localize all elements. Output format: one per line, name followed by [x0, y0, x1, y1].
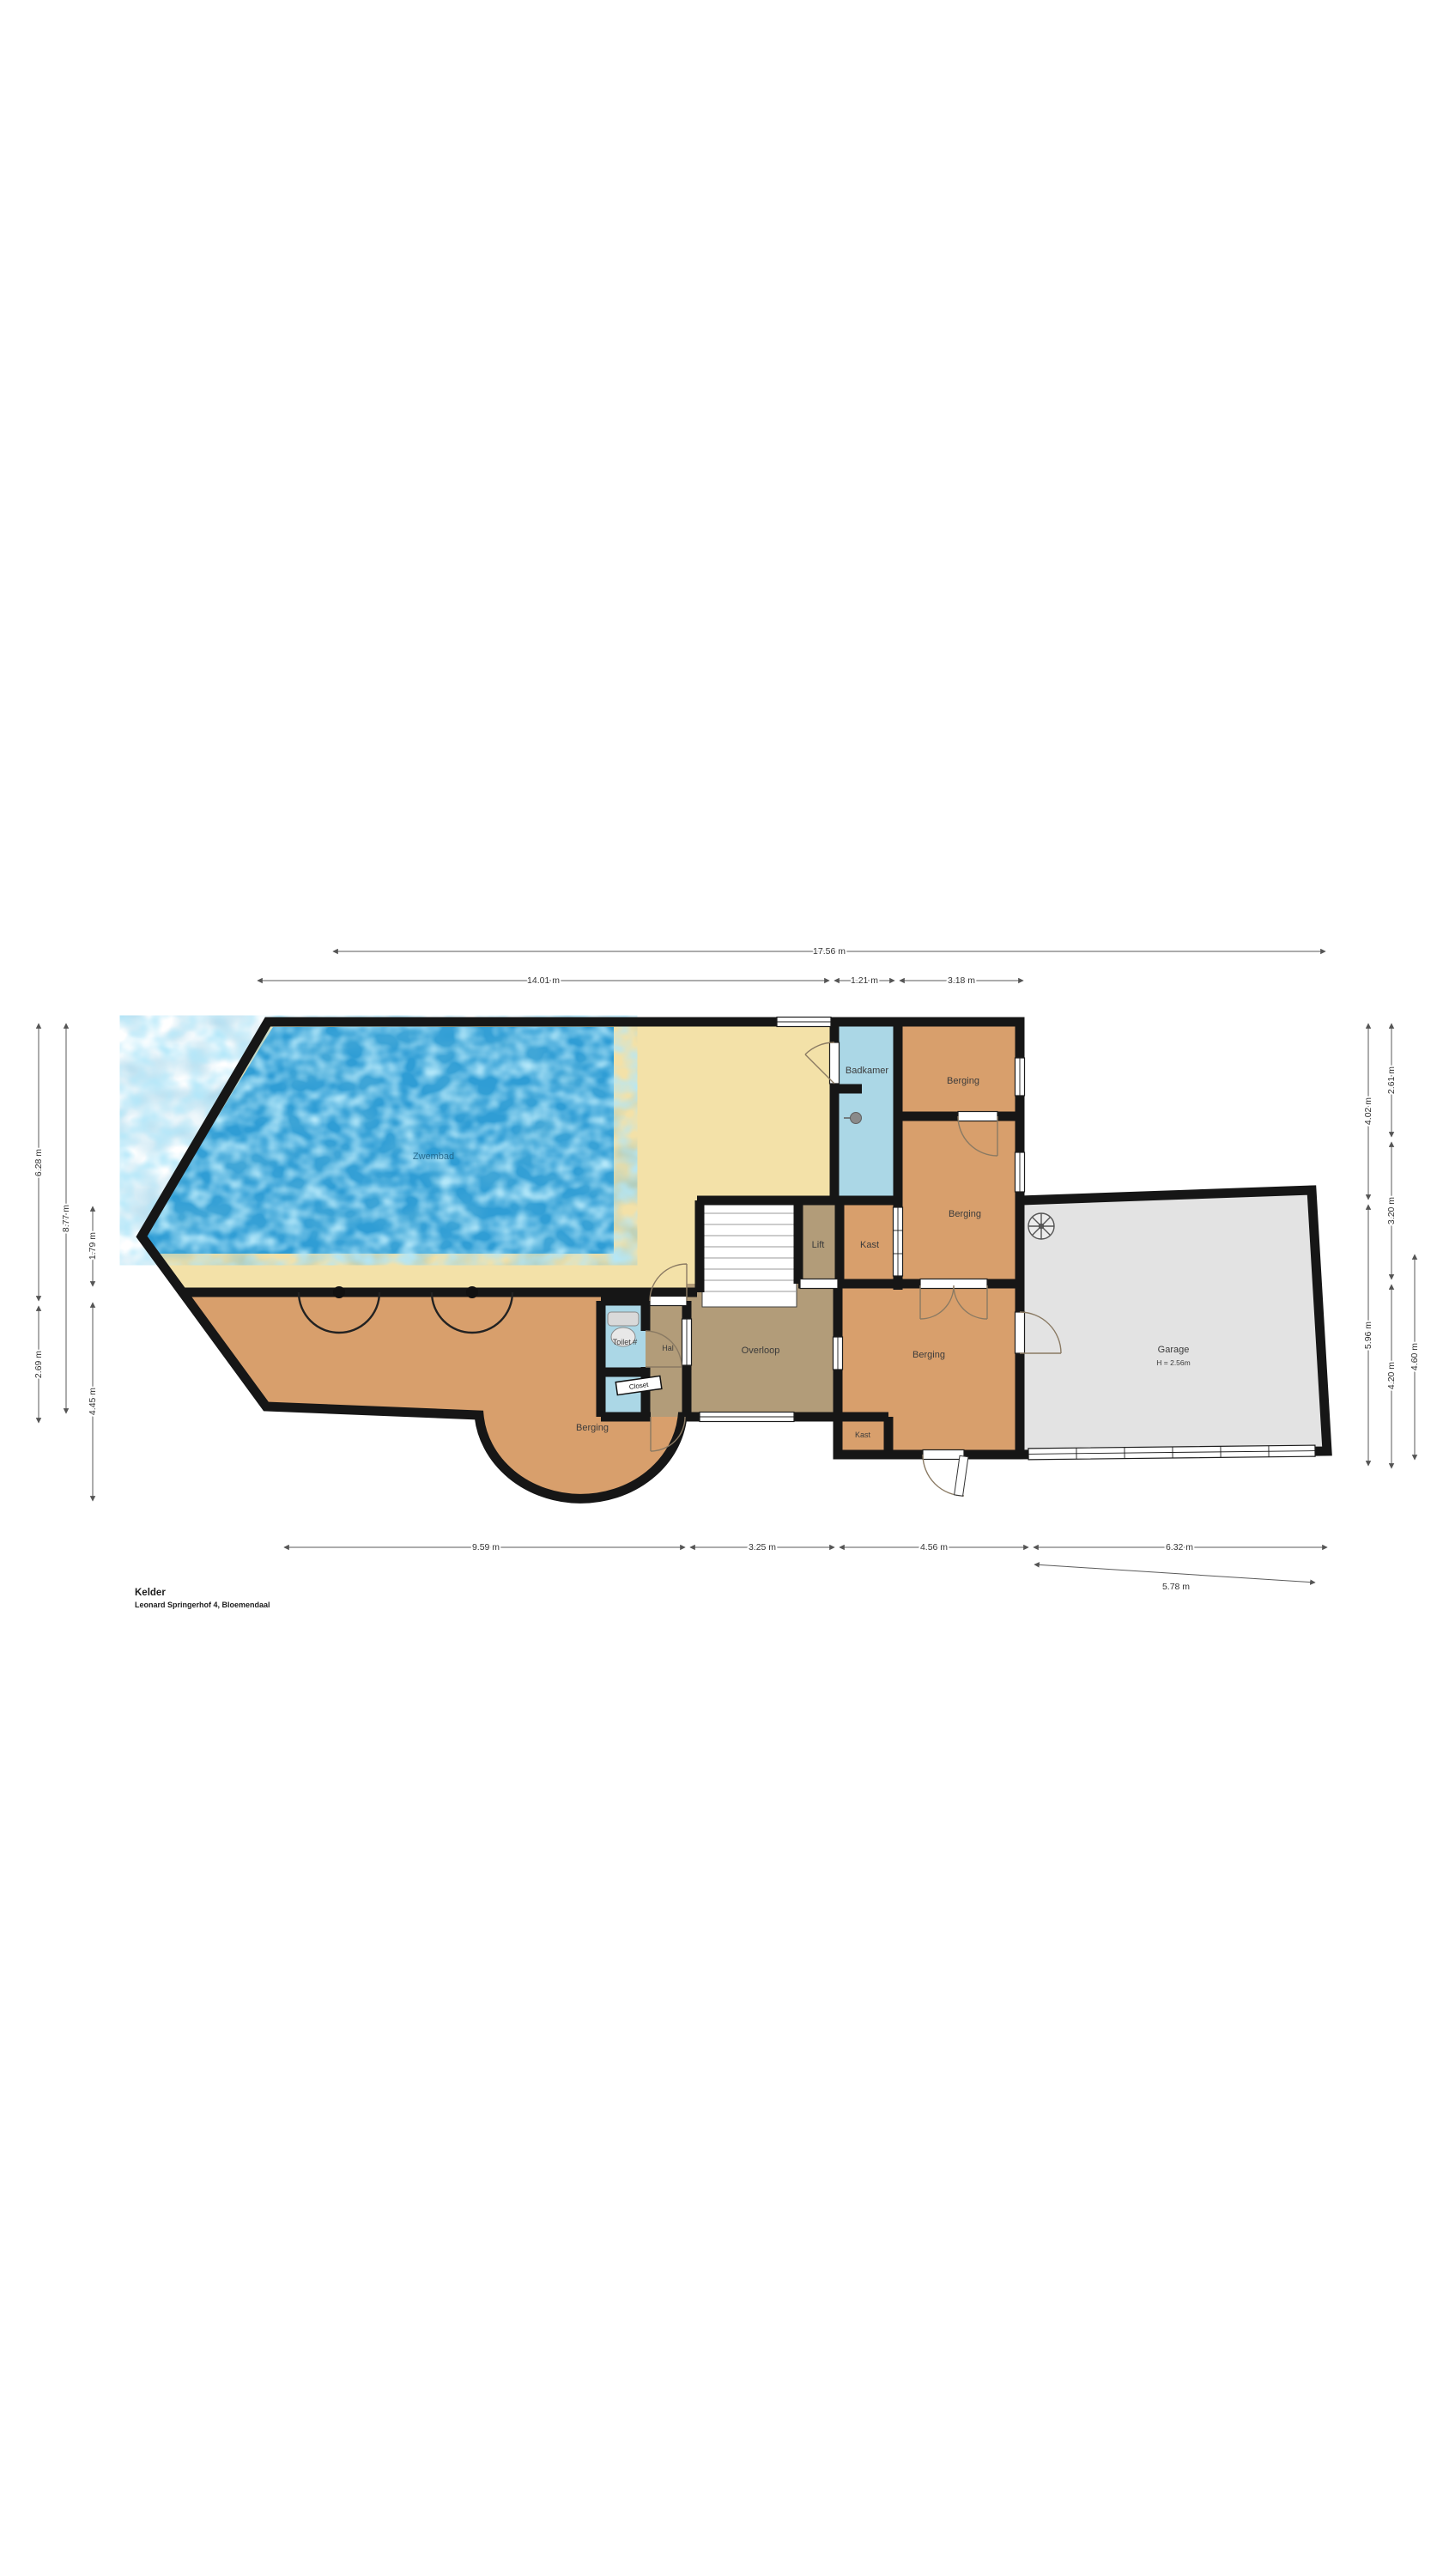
door-opening-garage	[1016, 1312, 1025, 1353]
label-overloop: Overloop	[742, 1346, 780, 1356]
door-opening-badkamer	[830, 1042, 840, 1084]
room-badkamer	[834, 1022, 898, 1200]
label-berging-mid: Berging	[949, 1209, 981, 1219]
label-berging-main: Berging	[912, 1350, 945, 1360]
label-kast: Kast	[860, 1240, 879, 1250]
window-hal-overloop	[682, 1319, 692, 1365]
door-opening-exterior	[923, 1450, 964, 1460]
dim-top-seg1: 14.01 m	[527, 975, 560, 986]
door-opening-berging-top	[958, 1112, 997, 1121]
room-fills	[142, 1022, 1327, 1498]
window-berging-mid-right	[1016, 1152, 1025, 1192]
room-berging-mid	[898, 1116, 1020, 1285]
plan-subtitle: Leonard Springerhof 4, Bloemendaal	[135, 1601, 270, 1609]
door-opening-deck-hal	[650, 1297, 687, 1306]
window-top-wall	[777, 1018, 831, 1027]
plan-title-block: Kelder Leonard Springerhof 4, Bloemendaa…	[135, 1588, 270, 1609]
dim-top-seg2: 1.21 m	[851, 975, 878, 986]
dim-right-mid-mid: 3.20 m	[1386, 1197, 1397, 1224]
room-garage	[1020, 1190, 1327, 1455]
dim-left-outer-top: 6.28 m	[33, 1149, 44, 1176]
dim-bottom-seg4: 6.32 m	[1166, 1542, 1193, 1552]
label-berging-top: Berging	[947, 1076, 979, 1086]
dim-left-outer-bottom: 2.69 m	[33, 1351, 44, 1378]
label-berging-pool: Berging	[576, 1423, 609, 1433]
dim-bottom-seg3: 4.56 m	[920, 1542, 948, 1552]
dimline-garage-door	[1034, 1564, 1315, 1583]
door-leaf-exterior	[955, 1455, 968, 1496]
label-zwembad: Zwembad	[413, 1151, 454, 1162]
room-berging-top	[898, 1022, 1020, 1116]
window-overloop-bottom	[700, 1413, 794, 1422]
pool-column-icon	[333, 1286, 345, 1298]
dim-left-middle: 8.77 m	[61, 1205, 71, 1232]
dim-right-mid-top: 2.61 m	[1386, 1066, 1397, 1094]
dim-top-total: 17.56 m	[813, 946, 846, 957]
dim-left-inner-bottom: 4.45 m	[88, 1388, 98, 1415]
window-kast-glass-partition	[894, 1207, 903, 1276]
label-hal: Hal	[662, 1344, 674, 1352]
window-berging-top-right	[1016, 1058, 1025, 1096]
floorplan-canvas: Zwembad Badkamer Berging Berging Berging…	[0, 0, 1449, 2576]
label-kast-small: Kast	[855, 1431, 871, 1439]
plan-title: Kelder	[135, 1588, 166, 1598]
dim-top-seg3: 3.18 m	[948, 975, 975, 986]
dim-right-inner-top: 4.02 m	[1363, 1097, 1373, 1125]
dim-bottom-seg1: 9.59 m	[472, 1542, 500, 1552]
dim-right-inner-bottom: 5.96 m	[1363, 1321, 1373, 1349]
label-badkamer: Badkamer	[846, 1066, 888, 1076]
label-lift: Lift	[812, 1240, 825, 1250]
label-garage: Garage	[1158, 1345, 1190, 1355]
door-lift	[800, 1279, 838, 1289]
dim-right-mid-bottom: 4.20 m	[1386, 1362, 1397, 1389]
dim-right-outer: 4.60 m	[1410, 1343, 1420, 1370]
label-toilet: Toilet #	[613, 1338, 638, 1346]
dim-garage-door: 5.78 m	[1162, 1582, 1190, 1592]
window-overloop-berging	[834, 1337, 843, 1370]
room-berging-main	[838, 1284, 1020, 1455]
boiler-icon	[1028, 1213, 1054, 1239]
pool-column-icon	[466, 1286, 478, 1298]
dim-left-inner-top: 1.79 m	[88, 1232, 98, 1260]
pool-water-texture-light	[143, 1027, 614, 1254]
dim-bottom-seg2: 3.25 m	[749, 1542, 776, 1552]
label-garage-height: H = 2.56m	[1156, 1358, 1190, 1367]
